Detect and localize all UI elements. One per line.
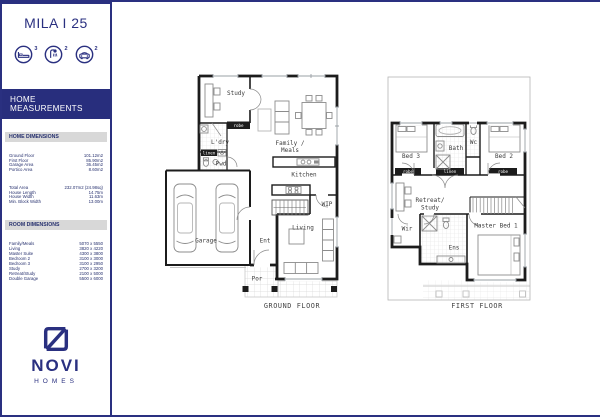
room-label-bed2: Bed 2 <box>495 153 513 160</box>
dimension-row: Min. Block Width13.00m <box>5 200 107 205</box>
room-dimensions-rows: Family/Meals5070 x 5550 Living3820 x 422… <box>5 241 107 281</box>
room-label-wir: Wir <box>402 226 413 233</box>
room-label-meals: Meals <box>281 147 299 154</box>
room-label-robe-left: robe <box>403 169 414 174</box>
bed-icon <box>14 45 33 64</box>
room-label-wc: Wc <box>470 139 478 146</box>
room-label-retreat-2: Study <box>421 205 439 212</box>
floorplan-sheet: MILA I 25 3 2 <box>0 0 600 417</box>
room-label-retreat-1: Retreat/ <box>416 197 445 204</box>
novi-wordmark: NOVI <box>2 356 110 376</box>
room-label-ens: Ens <box>449 245 460 252</box>
novi-homes-sub: HOMES <box>2 378 110 385</box>
room-label-wip: WIP <box>322 201 333 208</box>
master-bed-furniture <box>478 235 520 275</box>
shower-icon <box>44 45 63 64</box>
home-measurements-header: HOME MEASUREMENTS <box>2 89 110 119</box>
room-label-bath: Bath <box>449 145 464 152</box>
wir-fixtures <box>394 236 401 243</box>
room-label-ldry: L'dry <box>211 139 229 146</box>
first-floor-plan: Bed 3 Bath Wc Bed 2 robe linen robe Retr… <box>370 57 600 327</box>
car-icon <box>75 45 94 64</box>
room-dimensions-header: ROOM DIMENSIONS <box>5 220 107 230</box>
retreat-furniture <box>396 183 411 211</box>
feature-icons: 3 2 <box>2 45 110 64</box>
first-floor-caption: FIRST FLOOR <box>451 302 503 310</box>
room-label-bed3: Bed 3 <box>402 153 420 160</box>
plan-title: MILA I 25 <box>2 15 110 31</box>
bed3-furniture <box>396 125 427 152</box>
bed2-furniture <box>489 125 520 152</box>
room-label-pwd: Pwd <box>216 161 227 168</box>
room-label-garage: Garage <box>195 238 217 245</box>
novi-logo-icon <box>41 324 71 354</box>
ground-floor-caption: GROUND FLOOR <box>264 302 321 310</box>
room-label-linen: linen <box>444 169 457 174</box>
roof-outline <box>388 77 530 300</box>
bathroom-count: 2 <box>64 46 67 52</box>
garage-count: 2 <box>95 46 98 52</box>
family-meals-furniture <box>258 96 332 136</box>
ground-stairs <box>272 200 308 215</box>
room-label-study: Study <box>227 90 245 97</box>
feature-bedrooms: 3 <box>14 45 37 64</box>
home-dimensions-header: HOME DIMENSIONS <box>5 132 107 142</box>
dimension-row: Double Garage5500 x 6000 <box>5 276 107 281</box>
study-furniture <box>205 84 220 117</box>
bedroom-count: 3 <box>34 46 37 52</box>
feature-bathrooms: 2 <box>44 45 67 64</box>
room-label-robe-right: robe <box>498 169 509 174</box>
feature-garage: 2 <box>75 45 98 64</box>
novi-logo: NOVI HOMES <box>2 324 110 385</box>
room-label-living: Living <box>292 225 314 232</box>
room-label-kitchen: Kitchen <box>291 172 317 179</box>
first-porch-paving <box>423 281 530 300</box>
ground-floor-plan: Study robe L'dry linen Pwd Family / Meal… <box>150 57 380 327</box>
room-label-por: Por <box>252 276 263 283</box>
room-label-ent: Ent <box>260 238 271 245</box>
room-label-family: Family / <box>276 140 305 147</box>
home-dimensions-totals: Total Area232.07m2 (24.98sq) House Lengt… <box>5 186 107 204</box>
room-label-master: Master Bed 1 <box>474 223 518 230</box>
sidebar: MILA I 25 3 2 <box>0 2 112 417</box>
first-stairs <box>473 197 525 214</box>
dimension-row: Portico Area8.60m2 <box>5 168 107 173</box>
room-label-linen: linen <box>203 151 216 156</box>
home-dimensions-rows: Ground Floor101.12m2 First Floor85.90m2 … <box>5 154 107 172</box>
room-label-robe: robe <box>233 123 244 128</box>
